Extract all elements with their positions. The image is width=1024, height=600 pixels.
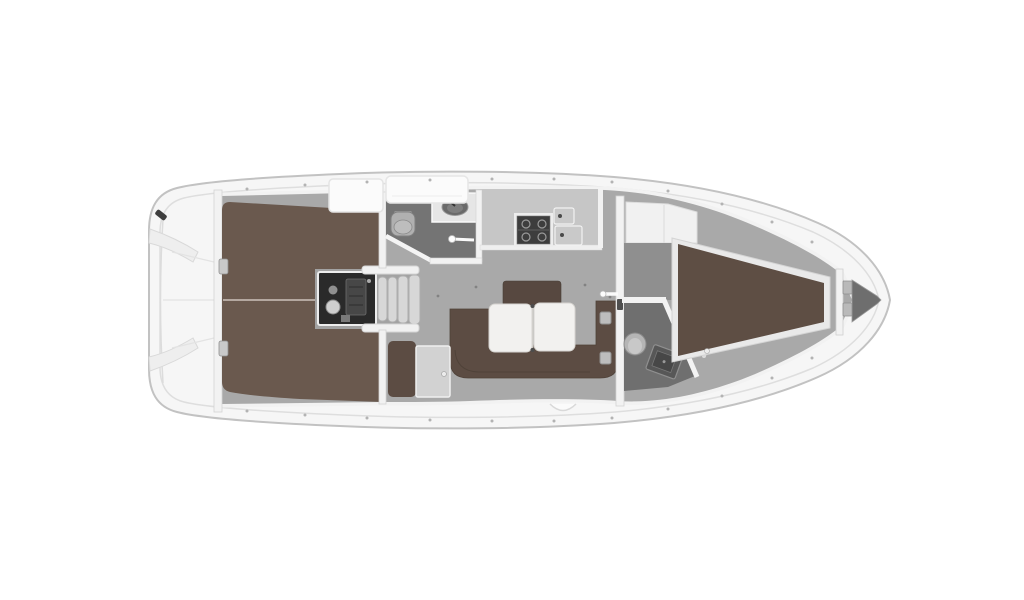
stanchion-dot [721, 395, 724, 398]
table-hinge-bottom [531, 348, 535, 352]
anchor-bulkhead [836, 269, 843, 335]
bulkhead-hinge-top [219, 259, 228, 274]
nav-station [388, 341, 450, 397]
galley-sink-large [555, 226, 582, 245]
chart-table-knob [442, 372, 447, 377]
stanchion-dot [811, 357, 814, 360]
aft-head-handle-knob [449, 236, 456, 243]
companionway-step-1 [378, 277, 387, 321]
stanchion-dot [429, 179, 432, 182]
stanchion-dot [771, 221, 774, 224]
floor-dot [584, 284, 587, 287]
aft-bulkhead-lower [379, 330, 386, 404]
stanchion-dot [246, 188, 249, 191]
layout-canvas [0, 0, 1024, 600]
settee-hinge-top [600, 312, 611, 324]
yacht-layout-plan [0, 0, 1024, 600]
sink-drain-large [560, 233, 564, 237]
stanchion-dot [553, 420, 556, 423]
stanchion-dot [811, 241, 814, 244]
stanchion-dot [611, 417, 614, 420]
settee-backrest [503, 281, 561, 306]
fwd-cabin-entry-floor [624, 243, 676, 300]
table-leaf-right [534, 303, 575, 351]
berth-frame-knob [705, 349, 710, 354]
stern-bulkhead [214, 190, 222, 412]
fwd-head-handle-knob [600, 291, 606, 297]
bulkhead-hinge-bottom [219, 341, 228, 356]
anchor-step-top [843, 281, 852, 294]
nav-seat [388, 341, 416, 397]
stanchion-dot [491, 178, 494, 181]
galley-sink-small [554, 208, 574, 224]
stanchion-dot [491, 420, 494, 423]
companionway-rail-top [362, 266, 419, 274]
anchor-step-bottom [843, 303, 852, 316]
stanchion-dot [721, 203, 724, 206]
engine-filter [329, 286, 338, 295]
companionway-step-3 [398, 276, 408, 323]
aft-head-sink-bowl [447, 203, 463, 213]
companionway-step-4 [409, 275, 420, 324]
stanchion-dot [246, 410, 249, 413]
sliding-hatch-garage [329, 179, 383, 212]
engine-cap [367, 279, 371, 283]
sink-drain-small [558, 214, 562, 218]
engine-pulley [326, 300, 340, 314]
engine-and-companionway [315, 266, 420, 332]
aft-head-front-wall [430, 258, 482, 264]
stanchion-dot [429, 419, 432, 422]
stanchion-dot [553, 178, 556, 181]
stanchion-dot [667, 408, 670, 411]
companionway-hatch [386, 176, 468, 203]
stanchion-dot [366, 181, 369, 184]
forward-head-toilet-seat [628, 338, 642, 354]
table-leaf-left [489, 304, 532, 352]
engine-block [346, 279, 366, 315]
galley-end-wall [598, 189, 603, 248]
floor-dot [475, 286, 478, 289]
stanchion-dot [667, 190, 670, 193]
companionway-rail-bottom [362, 324, 419, 332]
table-hinge-top [531, 304, 535, 308]
stanchion-dot [304, 184, 307, 187]
floor-dot [609, 296, 612, 299]
engine-mount [341, 315, 350, 322]
stanchion-dot [771, 377, 774, 380]
settee-hinge-bottom [600, 352, 611, 364]
galley [480, 189, 603, 250]
stanchion-dot [611, 181, 614, 184]
stanchion-dot [304, 414, 307, 417]
forward-head-top-wall [622, 297, 666, 303]
stanchion-dot [366, 417, 369, 420]
aft-head-side-wall [476, 190, 482, 262]
floor-dot [437, 295, 440, 298]
companionway-step-2 [388, 277, 397, 322]
aft-head-toilet-seat [394, 220, 412, 234]
